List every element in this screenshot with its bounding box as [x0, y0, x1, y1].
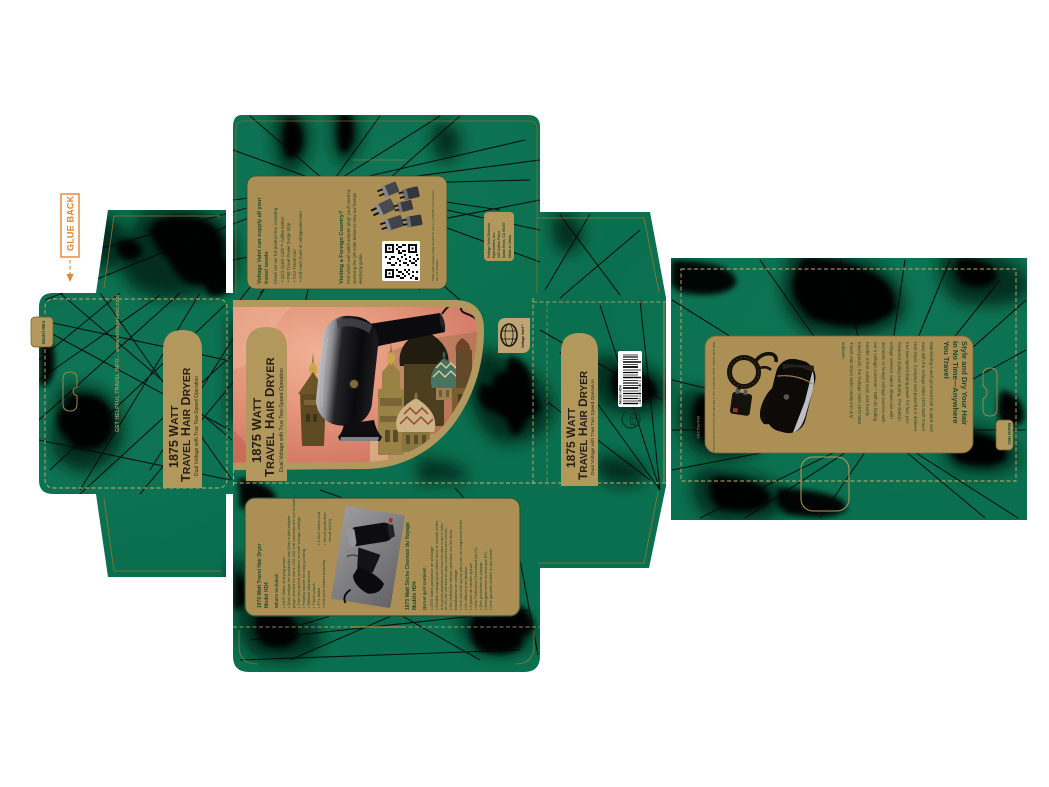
svg-text:fessional styling and drying.: fessional styling and drying. The built-… [897, 342, 902, 421]
svg-text:scanning the QR code below to: scanning the QR code below to view our f… [352, 192, 357, 284]
svg-text:What's Included:: What's Included: [274, 573, 279, 608]
svg-text:Visiting a Foreign Country?: Visiting a Foreign Country? [339, 210, 345, 284]
svg-text:• Une garantie limitée à une: • Une garantie limitée à une année [488, 548, 493, 610]
svg-text:1875 Watt Sèche Cheveux du Voy: 1875 Watt Sèche Cheveux du Voyage [405, 522, 411, 610]
svg-text:TRAVEL HAIR DRYER: TRAVEL HAIR DRYER [262, 357, 277, 477]
svg-text:travel needs: travel needs [264, 251, 270, 284]
svg-text:Find which wall outlet adapter: Find which wall outlet adapter plug* you… [346, 188, 351, 284]
svg-text:*Wall outlet adapter plugs nee: *Wall outlet adapter plugs needed for us… [712, 341, 716, 453]
svg-text:Check out our full product lin: Check out our full product line, includi… [273, 207, 278, 284]
svg-text:easy with the Voltage Valet 18: easy with the Voltage Valet 1875 Watt Tr… [921, 342, 926, 431]
svg-text:Model HD4: Model HD4 [1007, 423, 1012, 445]
svg-text:handle, 6-foot coiled cord, an: handle, 6-foot coiled cord, and handy [865, 342, 870, 417]
svg-text:0 48016 52520 8: 0 48016 52520 8 [638, 380, 642, 404]
svg-text:us: us [637, 406, 641, 410]
svg-text:225 Sutton Place: 225 Sutton Place [497, 231, 501, 258]
svg-text:domestic or foreign voltage so: domestic or foreign voltage sources with… [881, 342, 886, 424]
svg-text:HD4-PKG-0313: HD4-PKG-0313 [696, 416, 700, 439]
svg-text:are not included.: are not included. [435, 259, 439, 281]
svg-text:Hair Dryer. Compact and powerf: Hair Dryer. Compact and powerful, it del… [913, 342, 918, 432]
svg-text:Dual Voltage with True Two-Spe: Dual Voltage with True Two-Speed Operati… [194, 376, 200, 476]
svg-text:• 6-foot coiled cord: • 6-foot coiled cord [316, 512, 321, 545]
svg-text:Model HD4: Model HD4 [264, 582, 270, 608]
svg-text:GLUE BACK: GLUE BACK [66, 195, 76, 251]
svg-text:Dual Voltage with True Two Spe: Dual Voltage with True Two Speed Operati… [590, 379, 596, 475]
svg-text:Hybrinetics, Inc.: Hybrinetics, Inc. [492, 232, 496, 258]
svg-text:• QC2 Quick Café™ Coffee Maker: • QC2 Quick Café™ Coffee Maker [280, 216, 285, 282]
svg-text:Maintaining a well-groomed loo: Maintaining a well-groomed look is quick… [929, 342, 934, 432]
svg-text:• P50 Travel Power Surge Strip: • P50 Travel Power Surge Strip [286, 222, 291, 282]
svg-text:Model HD4: Model HD4 [619, 385, 623, 404]
svg-text:ETL: ETL [629, 411, 638, 426]
svg-text:Voltage Valet Division: Voltage Valet Division [487, 223, 491, 258]
svg-text:You Travel: You Travel [942, 341, 951, 379]
svg-text:travel pouch, the Voltage Vale: travel pouch, the Voltage Valet 1875 Wat… [857, 342, 862, 425]
svg-text:TRAVEL HAIR DRYER: TRAVEL HAIR DRYER [576, 370, 590, 480]
svg-text:Made in China: Made in China [508, 235, 512, 258]
svg-text:• One year limited warranty: • One year limited warranty [321, 560, 326, 608]
svg-text:Santa Rosa, CA 95407: Santa Rosa, CA 95407 [502, 222, 506, 258]
svg-text:Travel Hair Dryer tucks neatly: Travel Hair Dryer tucks neatly into any [849, 342, 854, 419]
svg-text:electricity guide.: electricity guide. [358, 253, 363, 284]
svg-text:GET HELPFUL TRAVEL INFO... www: GET HELPFUL TRAVEL INFO... www.voltageva… [115, 294, 121, 432]
svg-text:true two-speed drying power fo: true two-speed drying power for fast, pr… [905, 342, 910, 425]
svg-text:in No Time—Anywhere: in No Time—Anywhere [951, 341, 960, 424]
svg-text:voltage selector switch allows: voltage selector switch allows use with [889, 342, 894, 419]
svg-text:TRAVEL HAIR DRYER: TRAVEL HAIR DRYER [179, 367, 193, 482]
svg-text:suitcase.: suitcase. [841, 342, 846, 360]
svg-text:Dual Voltage with True Two-Spe: Dual Voltage with True Two-Speed Operati… [279, 368, 285, 472]
svg-text:Modèle HD4: Modèle HD4 [412, 581, 418, 610]
svg-text:• And much more at voltagevale: • And much more at voltagevalet.com [298, 211, 303, 282]
svg-text:out a voltage converter.* With: out a voltage converter.* With its foldi… [873, 342, 878, 422]
svg-text:Style and Dry Your Hair: Style and Dry Your Hair [960, 341, 969, 425]
svg-text:circuit (ALCI): circuit (ALCI) [327, 518, 332, 542]
svg-text:• Double voltage pour utiliser: • Double voltage pour utiliser dans le m… [434, 520, 439, 610]
svg-text:Voltage Valet™: Voltage Valet™ [521, 324, 525, 348]
svg-text:1875 Watt Travel Hair Dryer: 1875 Watt Travel Hair Dryer [257, 543, 263, 608]
svg-text:Model HD4: Model HD4 [41, 320, 46, 344]
svg-text:Qu'est qu'il contient :: Qu'est qu'il contient : [422, 565, 427, 610]
svg-text:Voltage Valet can supply all: Voltage Valet can supply all your [257, 197, 263, 284]
svg-text:• TI12 Travel Iron: • TI12 Travel Iron [292, 249, 297, 282]
